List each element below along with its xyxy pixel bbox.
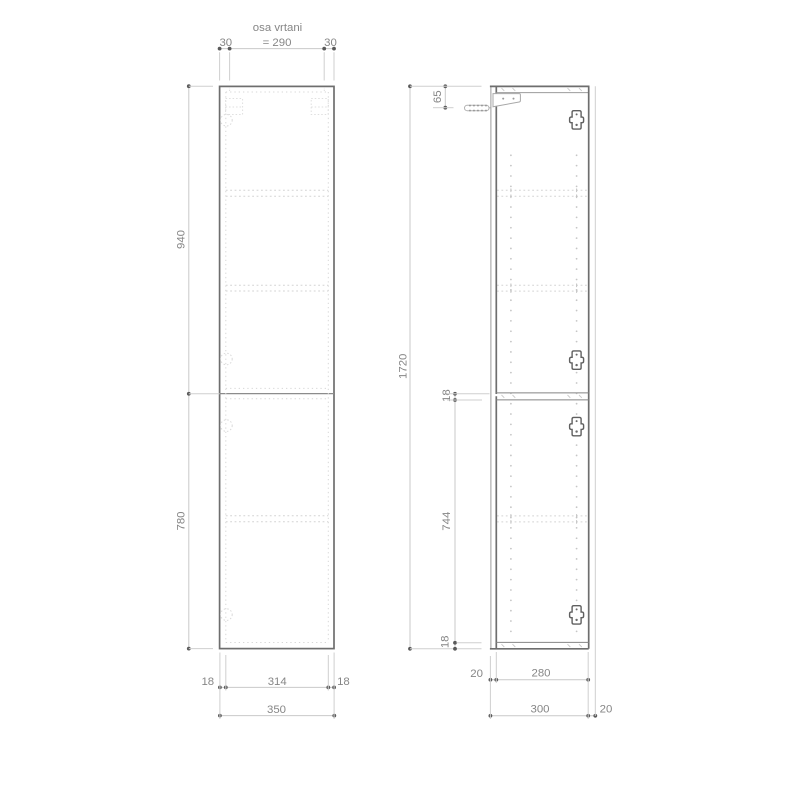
svg-text:= 290: = 290 [263,37,292,49]
svg-text:osa vrtani: osa vrtani [253,22,302,34]
svg-text:1720: 1720 [398,354,410,379]
svg-text:940: 940 [176,230,188,249]
svg-text:350: 350 [267,704,286,716]
svg-text:18: 18 [337,676,350,688]
svg-text:20: 20 [470,668,483,680]
svg-text:780: 780 [176,511,188,530]
svg-text:20: 20 [600,703,613,715]
svg-text:280: 280 [531,668,550,680]
svg-text:744: 744 [441,512,453,531]
svg-text:65: 65 [432,90,444,103]
svg-text:18: 18 [201,676,214,688]
svg-text:314: 314 [268,676,287,688]
svg-text:300: 300 [530,703,549,715]
svg-text:18: 18 [440,635,452,648]
